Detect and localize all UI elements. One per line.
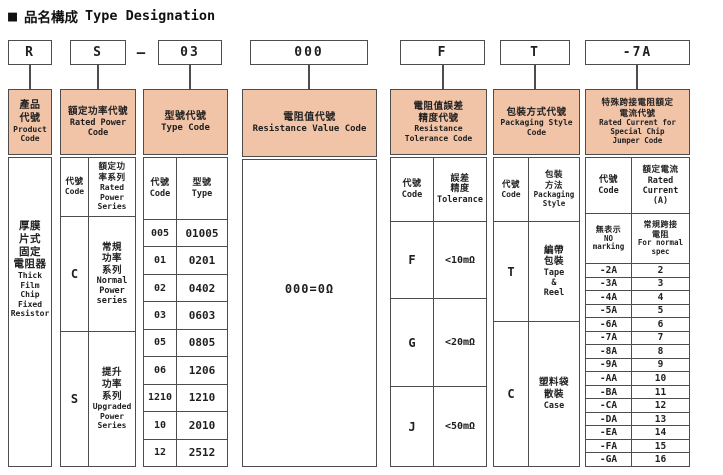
packaging-table: 代號 Code 包裝 方法 Packaging Style T 編帶 包裝 Ta… xyxy=(493,157,580,467)
jumper-row: -CA12 xyxy=(586,398,689,412)
power-normal-zh: 常規 功率 系列 xyxy=(102,242,122,277)
type-row: 102010 xyxy=(144,411,227,438)
packaging-row-case: C 塑料袋 散裝 Case xyxy=(494,321,579,466)
jumper-code: -EA xyxy=(586,426,632,439)
subheader-tolerance-code: 代號 Code xyxy=(391,158,434,221)
jumper-normal-spec-en: For normal spec xyxy=(638,239,683,257)
subheader-power-series: 額定功 率系列 Rated Power Series xyxy=(89,158,135,216)
jumper-amp: 11 xyxy=(632,386,689,399)
type-code: 005 xyxy=(144,220,177,246)
header-tolerance-zh: 電阻值誤差 精度代號 xyxy=(413,101,463,124)
header-product-en: Product Code xyxy=(13,125,47,144)
subheader-power-code-zh: 代號 xyxy=(65,177,83,187)
type-code: 1210 xyxy=(144,385,177,411)
jumper-row: -AA10 xyxy=(586,371,689,385)
product-description-cell: 厚膜 片式 固定 電阻器 Thick Film Chip Fixed Resis… xyxy=(8,157,52,467)
jumper-amp: 4 xyxy=(632,291,689,304)
tolerance-row: F <10mΩ xyxy=(391,221,486,298)
product-description-en: Thick Film Chip Fixed Resistor xyxy=(11,271,50,318)
header-product-zh: 產品 代號 xyxy=(20,100,41,124)
type-code: 10 xyxy=(144,412,177,438)
subheader-power-code: 代號 Code xyxy=(61,158,89,216)
power-normal-desc: 常規 功率 系列 Normal Power series xyxy=(89,217,135,331)
tolerance-value: <50mΩ xyxy=(434,387,486,466)
subheader-tolerance-zh: 誤差 精度 xyxy=(450,174,469,196)
jumper-code: -6A xyxy=(586,318,632,331)
jumper-code: -9A xyxy=(586,359,632,372)
jumper-normal-spec-zh: 常規跨接 電阻 xyxy=(644,220,678,240)
tolerance-value: <10mΩ xyxy=(434,222,486,298)
jumper-code: -GA xyxy=(586,453,632,466)
header-jumper-en: Rated Current for Special Chip Jumper Co… xyxy=(599,119,676,146)
jumper-code: -CA xyxy=(586,399,632,412)
jumper-code: -5A xyxy=(586,305,632,318)
jumper-amp: 7 xyxy=(632,332,689,345)
jumper-normal-spec: 常規跨接 電阻 For normal spec xyxy=(632,214,689,263)
title-zh: 品名構成 xyxy=(24,6,78,26)
packaging-tape-en: Tape & Reel xyxy=(544,268,564,298)
packaging-tape-zh: 編帶 包裝 xyxy=(544,245,564,268)
type-size: 2010 xyxy=(177,412,227,438)
packaging-subheader: 代號 Code 包裝 方法 Packaging Style xyxy=(494,158,579,221)
subheader-type-code: 代號 Code xyxy=(144,158,177,219)
jumper-code: -7A xyxy=(586,332,632,345)
type-designation-sheet: ■ 品名構成 Type Designation R S – 03 000 F T… xyxy=(0,0,723,475)
subheader-jumper-code: 代號 Code xyxy=(586,158,632,213)
jumper-row: -8A8 xyxy=(586,344,689,358)
type-row: 010201 xyxy=(144,246,227,273)
jumper-row-no-marking: 無表示 NO marking 常規跨接 電阻 For normal spec xyxy=(586,213,689,263)
type-row: 122512 xyxy=(144,439,227,466)
subheader-packaging-style-en: Packaging Style xyxy=(534,191,575,209)
type-size: 0603 xyxy=(177,302,227,328)
jumper-row: -DA13 xyxy=(586,412,689,426)
tolerance-subheader: 代號 Code 誤差 精度 Tolerance xyxy=(391,158,486,221)
header-resistance-en: Resistance Value Code xyxy=(253,124,367,135)
jumper-amp: 3 xyxy=(632,278,689,291)
resistance-value-cell: 000=0Ω xyxy=(242,159,377,467)
subheader-type-code-en: Code xyxy=(150,189,170,199)
jumper-row: -7A7 xyxy=(586,331,689,345)
subheader-power-code-en: Code xyxy=(65,187,84,196)
jumper-amp: 2 xyxy=(632,264,689,277)
type-row: 061206 xyxy=(144,356,227,383)
header-rated-power-code: 額定功率代號 Rated Power Code xyxy=(60,89,136,155)
jumper-row: -4A4 xyxy=(586,290,689,304)
header-packaging-zh: 包裝方式代號 xyxy=(506,107,566,119)
jumper-row: -9A9 xyxy=(586,358,689,372)
type-code-table: 代號 Code 型號 Type 00501005 010201 020402 0… xyxy=(143,157,228,467)
packaging-tape-desc: 編帶 包裝 Tape & Reel xyxy=(529,222,579,321)
subheader-tolerance-en: Tolerance xyxy=(437,195,483,205)
jumper-table: 代號 Code 額定電流 Rated Current (A) 無表示 NO ma… xyxy=(585,157,690,467)
jumper-no-marking-en: NO marking xyxy=(593,235,625,253)
header-jumper-code: 特殊跨接電阻額定 電流代號 Rated Current for Special … xyxy=(585,89,690,155)
header-jumper-zh: 特殊跨接電阻額定 電流代號 xyxy=(601,98,673,119)
type-row: 020402 xyxy=(144,274,227,301)
power-code-s: S xyxy=(61,332,89,466)
connector-line xyxy=(308,64,310,90)
subheader-type-type: 型號 Type xyxy=(177,158,227,219)
power-upgraded-zh: 提升 功率 系列 xyxy=(102,367,122,402)
power-upgraded-en: Upgraded Power Series xyxy=(93,402,132,430)
packaging-case-en: Case xyxy=(544,401,564,411)
connector-line xyxy=(29,64,31,90)
tolerance-row: G <20mΩ xyxy=(391,298,486,386)
type-code: 03 xyxy=(144,302,177,328)
header-rated-power-en: Rated Power Code xyxy=(70,118,126,138)
type-row: 050805 xyxy=(144,329,227,356)
code-box-product: R xyxy=(8,40,52,65)
jumper-amp: 6 xyxy=(632,318,689,331)
power-code-c: C xyxy=(61,217,89,331)
jumper-row: -2A2 xyxy=(586,263,689,277)
page-title: ■ 品名構成 Type Designation xyxy=(8,6,215,26)
tolerance-code-g: G xyxy=(391,299,434,386)
code-box-jumper: -7A xyxy=(585,40,690,65)
jumper-amp: 13 xyxy=(632,413,689,426)
tolerance-code-j: J xyxy=(391,387,434,466)
connector-line xyxy=(534,64,536,90)
packaging-code-t: T xyxy=(494,222,529,321)
header-packaging-code: 包裝方式代號 Packaging Style Code xyxy=(493,89,580,155)
jumper-code: -AA xyxy=(586,372,632,385)
header-tolerance-code: 電阻值誤差 精度代號 Resistance Tolerance Code xyxy=(390,89,487,155)
jumper-row: -GA16 xyxy=(586,452,689,466)
subheader-packaging-code-zh: 代號 xyxy=(502,180,520,190)
title-en: Type Designation xyxy=(85,8,215,24)
jumper-amp: 5 xyxy=(632,305,689,318)
packaging-case-desc: 塑料袋 散裝 Case xyxy=(529,322,579,466)
jumper-code: -2A xyxy=(586,264,632,277)
jumper-code: -DA xyxy=(586,413,632,426)
power-normal-en: Normal Power series xyxy=(97,276,128,306)
subheader-tolerance-value: 誤差 精度 Tolerance xyxy=(434,158,486,221)
type-size: 1206 xyxy=(177,357,227,383)
code-box-type: 03 xyxy=(158,40,222,65)
type-size: 1210 xyxy=(177,385,227,411)
tolerance-code-f: F xyxy=(391,222,434,298)
tolerance-row: J <50mΩ xyxy=(391,386,486,466)
header-type-zh: 型號代號 xyxy=(165,111,207,123)
header-packaging-en: Packaging Style Code xyxy=(500,118,572,137)
type-size: 0402 xyxy=(177,275,227,301)
subheader-jumper-code-en: Code xyxy=(598,186,618,196)
jumper-row: -3A3 xyxy=(586,277,689,291)
type-size: 01005 xyxy=(177,220,227,246)
subheader-tolerance-code-en: Code xyxy=(402,190,422,200)
jumper-amp: 10 xyxy=(632,372,689,385)
rated-power-subheader: 代號 Code 額定功 率系列 Rated Power Series xyxy=(61,158,135,216)
jumper-row: -BA11 xyxy=(586,385,689,399)
type-size: 0201 xyxy=(177,247,227,273)
type-code: 05 xyxy=(144,330,177,356)
subheader-packaging-code-en: Code xyxy=(501,190,520,199)
header-resistance-value-code: 電阻值代號 Resistance Value Code xyxy=(242,89,377,157)
header-rated-power-zh: 額定功率代號 xyxy=(68,106,128,118)
subheader-power-series-en: Rated Power Series xyxy=(98,183,127,211)
type-size: 0805 xyxy=(177,330,227,356)
jumper-code: -3A xyxy=(586,278,632,291)
code-box-resistance: 000 xyxy=(250,40,368,65)
header-resistance-zh: 電阻值代號 xyxy=(283,112,336,124)
subheader-packaging-style: 包裝 方法 Packaging Style xyxy=(529,158,579,221)
jumper-amp: 16 xyxy=(632,453,689,466)
subheader-jumper-current: 額定電流 Rated Current (A) xyxy=(632,158,689,213)
packaging-case-zh: 塑料袋 散裝 xyxy=(539,377,569,400)
subheader-jumper-current-zh: 額定電流 xyxy=(642,165,678,175)
jumper-code: -BA xyxy=(586,386,632,399)
type-row: 030603 xyxy=(144,301,227,328)
code-box-tolerance: F xyxy=(400,40,485,65)
header-tolerance-en: Resistance Tolerance Code xyxy=(405,124,472,143)
subheader-type-code-zh: 代號 xyxy=(150,178,169,189)
type-subheader: 代號 Code 型號 Type xyxy=(144,158,227,219)
jumper-code: -FA xyxy=(586,440,632,453)
header-type-code: 型號代號 Type Code xyxy=(143,89,228,155)
type-row: 00501005 xyxy=(144,219,227,246)
jumper-code: -4A xyxy=(586,291,632,304)
code-box-power: S xyxy=(70,40,126,65)
code-box-packaging: T xyxy=(500,40,570,65)
connector-line xyxy=(189,64,191,90)
subheader-jumper-code-zh: 代號 xyxy=(599,175,618,186)
tolerance-value: <20mΩ xyxy=(434,299,486,386)
jumper-no-marking: 無表示 NO marking xyxy=(586,214,632,263)
product-description-zh: 厚膜 片式 固定 電阻器 xyxy=(14,220,47,271)
rated-power-table: 代號 Code 額定功 率系列 Rated Power Series C 常規 … xyxy=(60,157,136,467)
subheader-packaging-code: 代號 Code xyxy=(494,158,529,221)
jumper-row: -EA14 xyxy=(586,425,689,439)
subheader-type-type-en: Type xyxy=(192,189,212,199)
connector-line xyxy=(97,64,99,90)
jumper-subheader: 代號 Code 額定電流 Rated Current (A) xyxy=(586,158,689,213)
type-row: 12101210 xyxy=(144,384,227,411)
header-type-en: Type Code xyxy=(161,123,210,134)
tolerance-table: 代號 Code 誤差 精度 Tolerance F <10mΩ G <20mΩ … xyxy=(390,157,487,467)
dash-separator: – xyxy=(129,40,153,65)
subheader-power-series-zh: 額定功 率系列 xyxy=(98,162,125,183)
resistance-value-text: 000=0Ω xyxy=(243,160,376,296)
connector-line xyxy=(636,64,638,90)
jumper-amp: 15 xyxy=(632,440,689,453)
subheader-packaging-style-zh: 包裝 方法 xyxy=(545,170,563,191)
power-upgraded-desc: 提升 功率 系列 Upgraded Power Series xyxy=(89,332,135,466)
type-size: 2512 xyxy=(177,440,227,466)
type-code: 06 xyxy=(144,357,177,383)
jumper-amp: 14 xyxy=(632,426,689,439)
subheader-tolerance-code-zh: 代號 xyxy=(402,179,421,190)
type-code: 02 xyxy=(144,275,177,301)
header-product-code: 產品 代號 Product Code xyxy=(8,89,52,155)
jumper-row: -5A5 xyxy=(586,304,689,318)
subheader-jumper-current-en: Rated Current (A) xyxy=(643,176,679,206)
packaging-code-c: C xyxy=(494,322,529,466)
jumper-amp: 12 xyxy=(632,399,689,412)
power-row-normal: C 常規 功率 系列 Normal Power series xyxy=(61,216,135,331)
power-row-upgraded: S 提升 功率 系列 Upgraded Power Series xyxy=(61,331,135,466)
packaging-row-tape: T 編帶 包裝 Tape & Reel xyxy=(494,221,579,321)
title-square-icon: ■ xyxy=(8,9,17,24)
jumper-amp: 9 xyxy=(632,359,689,372)
jumper-row: -6A6 xyxy=(586,317,689,331)
jumper-amp: 8 xyxy=(632,345,689,358)
subheader-type-type-zh: 型號 xyxy=(192,178,211,189)
type-code: 01 xyxy=(144,247,177,273)
jumper-code: -8A xyxy=(586,345,632,358)
jumper-row: -FA15 xyxy=(586,439,689,453)
type-code: 12 xyxy=(144,440,177,466)
connector-line xyxy=(442,64,444,90)
